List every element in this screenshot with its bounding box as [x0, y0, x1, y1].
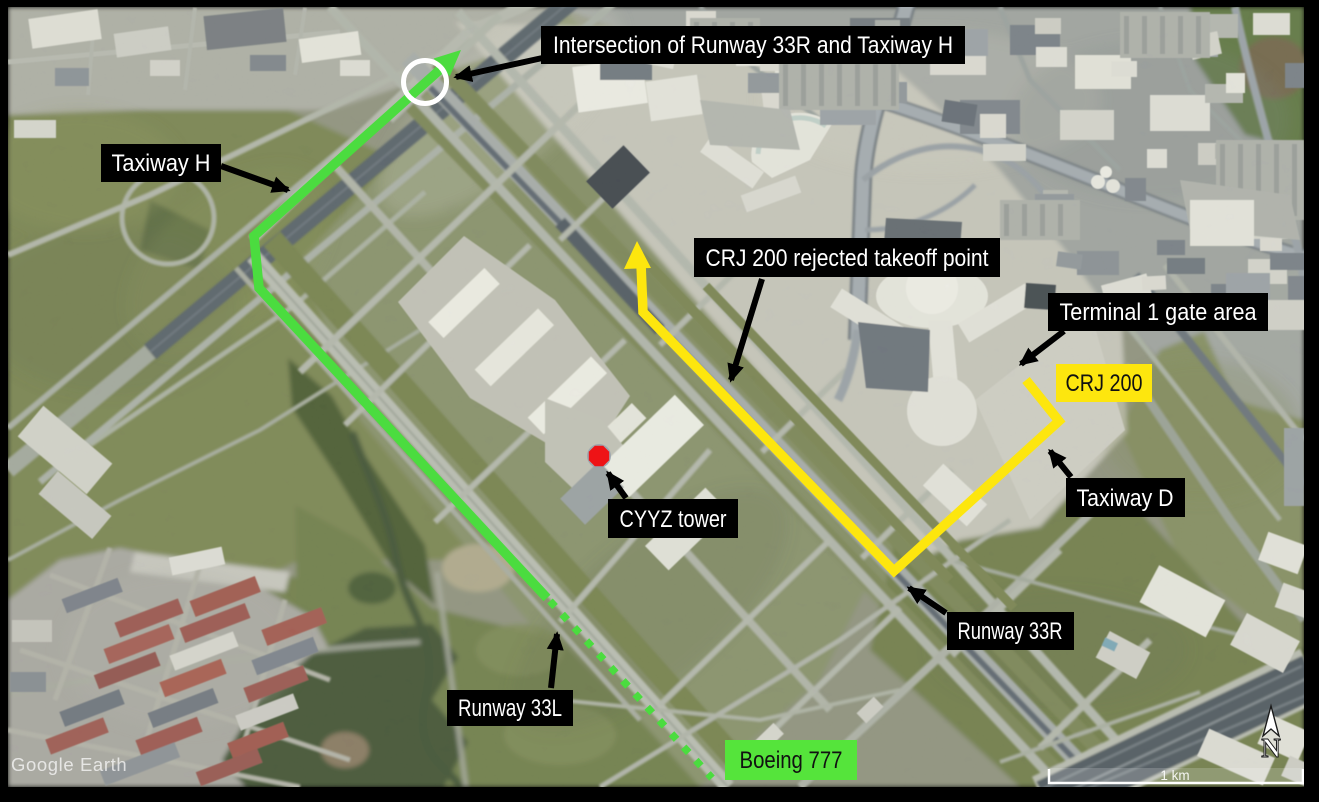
svg-text:1 km: 1 km — [1160, 768, 1189, 783]
svg-text:N: N — [1261, 733, 1281, 763]
svg-text:Google Earth: Google Earth — [11, 754, 127, 775]
svg-text:CYYZ tower: CYYZ tower — [620, 506, 727, 533]
svg-text:CRJ 200: CRJ 200 — [1066, 370, 1143, 397]
svg-text:Terminal 1 gate area: Terminal 1 gate area — [1060, 299, 1258, 326]
svg-text:Boeing 777: Boeing 777 — [740, 747, 843, 774]
svg-text:Taxiway D: Taxiway D — [1077, 485, 1174, 512]
svg-text:Runway 33R: Runway 33R — [958, 618, 1063, 645]
svg-text:Runway 33L: Runway 33L — [458, 695, 562, 722]
svg-text:Intersection of Runway 33R and: Intersection of Runway 33R and Taxiway H — [553, 32, 953, 59]
svg-text:Taxiway H: Taxiway H — [112, 150, 211, 177]
svg-text:CRJ 200 rejected takeoff point: CRJ 200 rejected takeoff point — [706, 245, 989, 272]
